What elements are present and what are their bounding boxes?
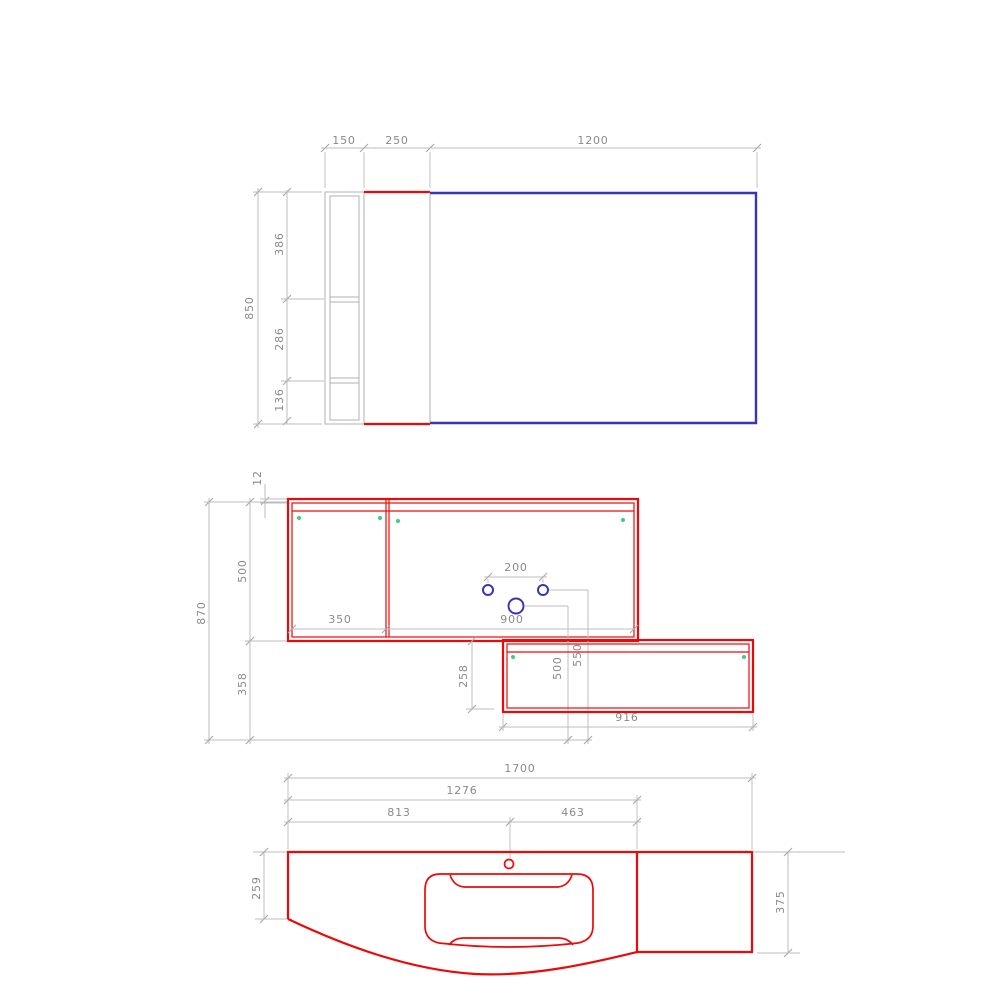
dim-label-463: 463 bbox=[561, 806, 584, 819]
counter-extension-lines bbox=[288, 773, 752, 858]
drawer-unit-inner bbox=[507, 644, 749, 708]
countertop-outline bbox=[288, 852, 752, 952]
side-cabinet-outline bbox=[325, 192, 364, 424]
fixing-dot bbox=[742, 655, 746, 659]
wall-panel-outline bbox=[430, 193, 756, 423]
fixing-dot bbox=[621, 518, 625, 522]
dim-label-500-height: 500 bbox=[236, 559, 249, 582]
tap-hole-right bbox=[538, 585, 548, 595]
dim-label-358: 358 bbox=[236, 672, 249, 695]
plan-left-extension-lines bbox=[253, 192, 324, 424]
dim-label-813: 813 bbox=[387, 806, 410, 819]
dim-label-870: 870 bbox=[195, 601, 208, 624]
technical-drawing-sheet: 150 250 1200 850 386 286 136 870 bbox=[0, 0, 1000, 1000]
dim-label-386: 386 bbox=[273, 232, 286, 255]
basin-outline bbox=[425, 874, 593, 947]
dim-label-1200: 1200 bbox=[577, 134, 608, 147]
fixing-dot bbox=[378, 516, 382, 520]
dim-label-286: 286 bbox=[273, 327, 286, 350]
countertop-front-curve bbox=[288, 919, 637, 974]
dim-label-850: 850 bbox=[243, 296, 256, 319]
basin-top-ledge bbox=[450, 875, 572, 887]
drawer-fixing-dots bbox=[511, 655, 746, 659]
upper-cabinet-fixing-dots bbox=[297, 516, 625, 523]
fixing-dot bbox=[511, 655, 515, 659]
plan-top-extension-lines bbox=[325, 152, 757, 188]
faucet-hole bbox=[505, 860, 514, 869]
front-view: 870 500 358 12 200 bbox=[195, 470, 757, 744]
dim-label-1276: 1276 bbox=[446, 784, 477, 797]
basin-bottom-ledge bbox=[449, 938, 573, 945]
dim-label-900: 900 bbox=[500, 613, 523, 626]
dim-label-375: 375 bbox=[774, 890, 787, 913]
dim-label-1700: 1700 bbox=[504, 762, 535, 775]
dim-label-500-pos: 500 bbox=[551, 656, 564, 679]
dim-label-250: 250 bbox=[385, 134, 408, 147]
dim-label-150: 150 bbox=[332, 134, 355, 147]
drain-hole bbox=[509, 599, 524, 614]
plan-view: 150 250 1200 850 386 286 136 bbox=[243, 134, 761, 428]
dim-label-258: 258 bbox=[457, 664, 470, 687]
hole-height-leaders bbox=[524, 590, 588, 606]
dim-label-350: 350 bbox=[328, 613, 351, 626]
front-200-extension bbox=[488, 579, 543, 583]
dim-label-259: 259 bbox=[250, 876, 263, 899]
tap-hole-left bbox=[483, 585, 493, 595]
countertop-view: 1700 1276 813 463 259 375 bbox=[250, 762, 845, 974]
side-cabinet-shelves bbox=[330, 297, 359, 383]
cabinet-footprint-edges bbox=[364, 192, 430, 424]
dim-label-12: 12 bbox=[251, 470, 264, 486]
dim-label-550: 550 bbox=[571, 643, 584, 666]
fixing-dot bbox=[297, 516, 301, 520]
side-cabinet-inner bbox=[330, 196, 359, 420]
dim-label-916: 916 bbox=[615, 711, 638, 724]
dim-label-200: 200 bbox=[504, 561, 527, 574]
fixing-dot bbox=[396, 519, 400, 523]
vanity-drawing-svg: 150 250 1200 850 386 286 136 870 bbox=[0, 0, 1000, 1000]
drawer-unit-outline bbox=[503, 640, 753, 712]
dim-label-136: 136 bbox=[273, 388, 286, 411]
upper-cabinet-divider bbox=[386, 500, 389, 637]
